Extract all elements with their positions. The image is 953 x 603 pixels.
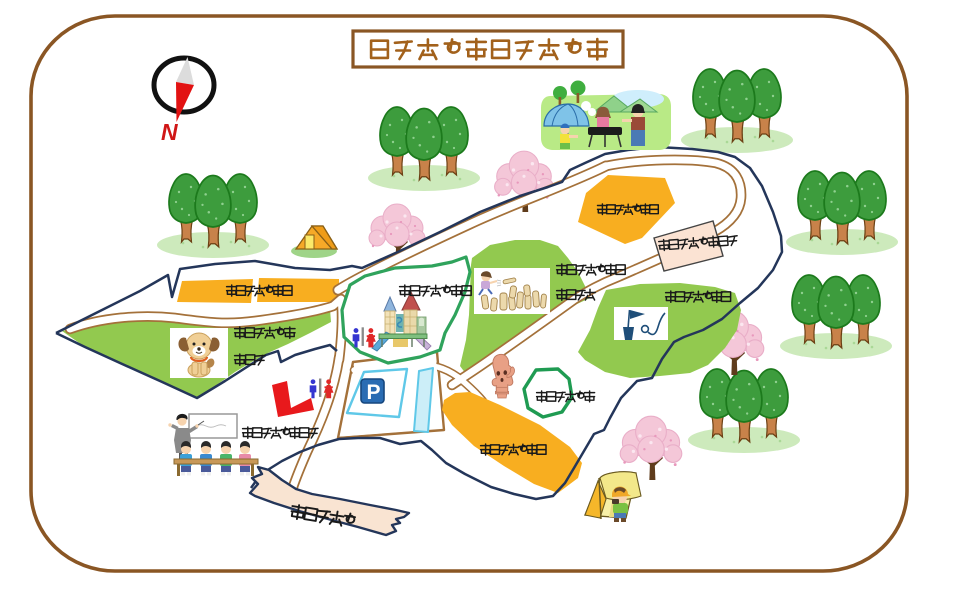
svg-text:N: N [161, 119, 178, 145]
svg-text:P: P [367, 381, 381, 404]
